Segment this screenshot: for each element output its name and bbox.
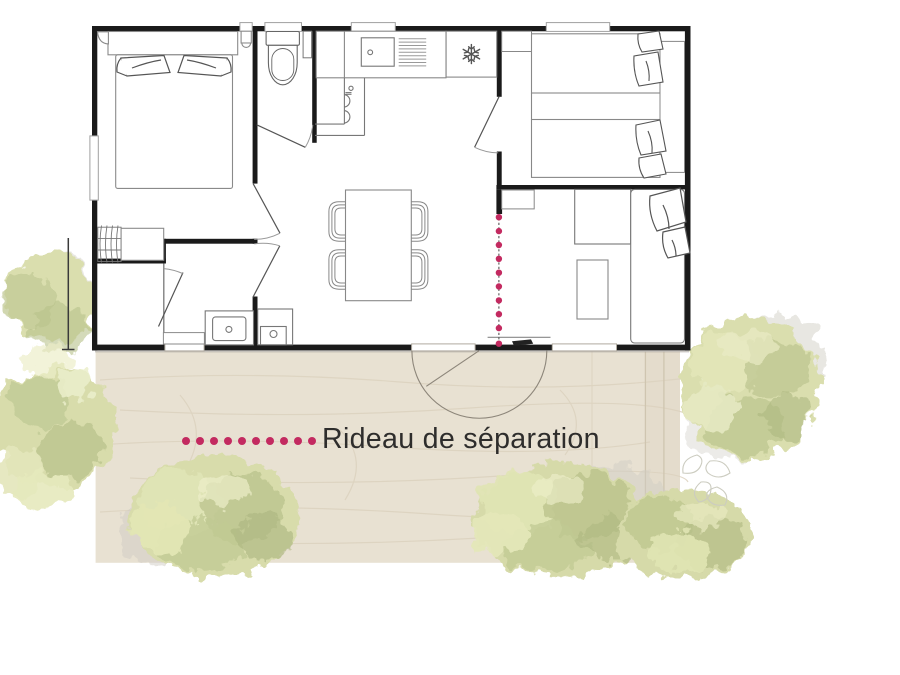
svg-text:Rideau de séparation: Rideau de séparation (322, 423, 600, 455)
